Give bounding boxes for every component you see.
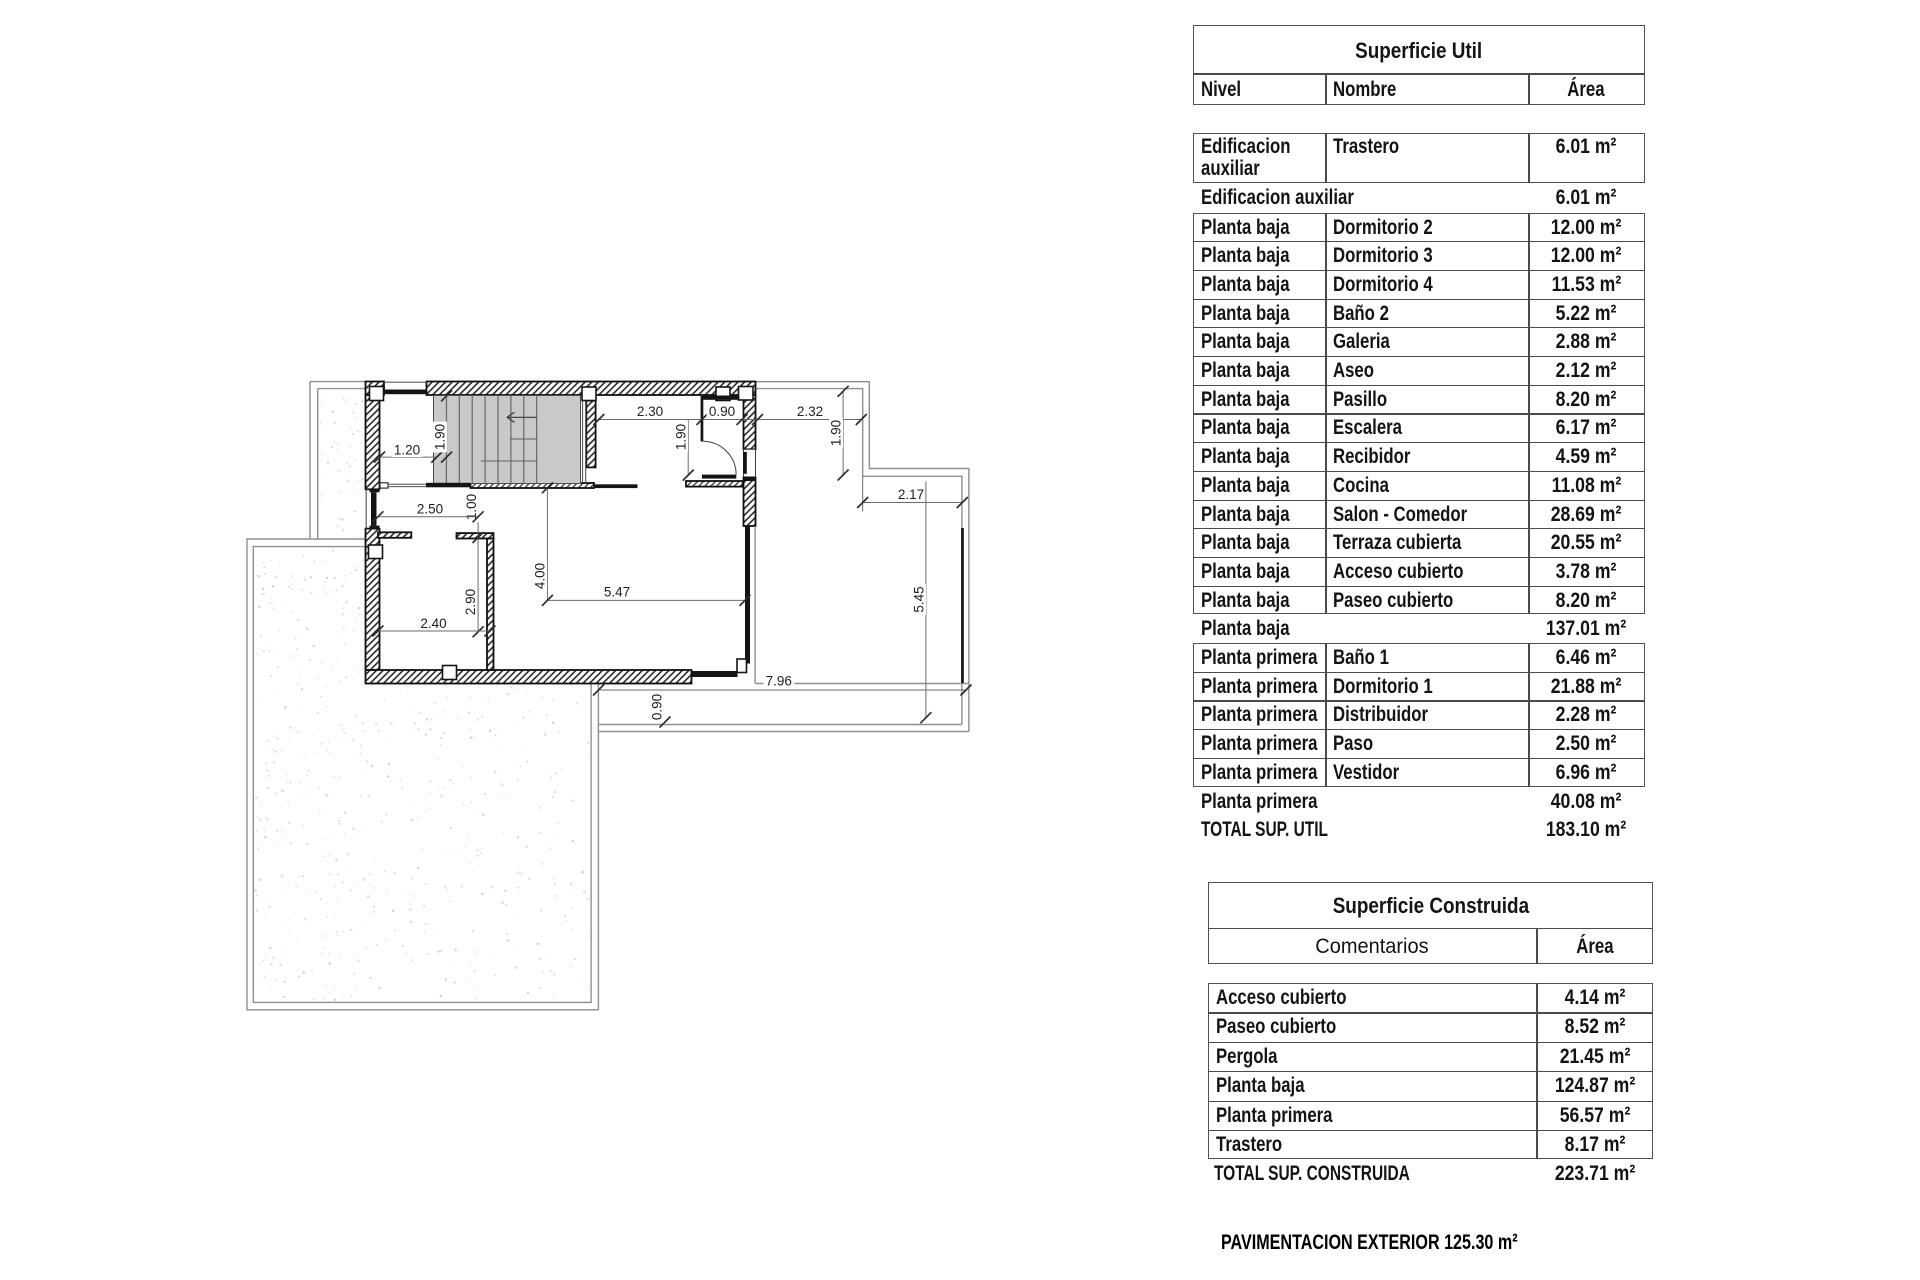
svg-text:1.00: 1.00	[464, 494, 479, 520]
svg-text:2.30: 2.30	[637, 404, 663, 419]
svg-text:4.00: 4.00	[533, 563, 548, 589]
svg-text:2.50: 2.50	[417, 502, 443, 517]
svg-text:2.40: 2.40	[420, 616, 446, 631]
svg-text:7.96: 7.96	[766, 674, 792, 689]
svg-text:1.20: 1.20	[394, 443, 420, 458]
svg-text:0.90: 0.90	[709, 404, 735, 419]
svg-text:2.32: 2.32	[797, 404, 823, 419]
svg-text:5.47: 5.47	[604, 585, 630, 600]
svg-text:0.90: 0.90	[650, 694, 665, 720]
svg-text:2.90: 2.90	[463, 589, 478, 615]
svg-text:2.17: 2.17	[898, 487, 924, 502]
svg-text:1.90: 1.90	[829, 420, 844, 446]
svg-text:5.45: 5.45	[912, 586, 927, 612]
svg-text:1.90: 1.90	[433, 424, 448, 450]
svg-text:1.90: 1.90	[674, 424, 689, 450]
